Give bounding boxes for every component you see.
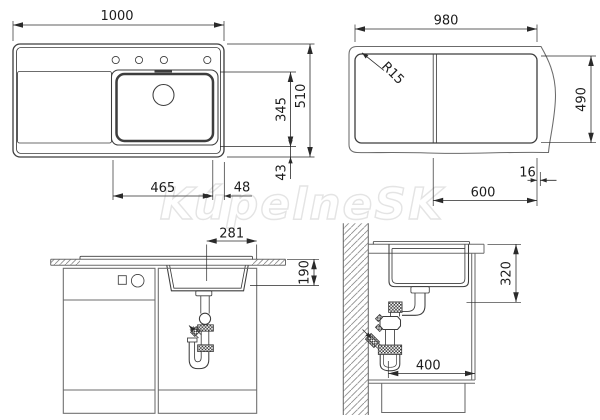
dim-wall-clearance: 400 bbox=[416, 359, 441, 374]
plan-view: 1000 510 345 43 465 48 bbox=[13, 9, 315, 200]
dim-bowl-to-front: 43 bbox=[275, 164, 290, 181]
dim-bowl-length: 345 bbox=[275, 97, 290, 122]
worktop-section bbox=[51, 259, 286, 265]
coupling-nut bbox=[198, 345, 214, 352]
dim-bowl-section-width: 600 bbox=[471, 186, 496, 201]
drainboard bbox=[18, 72, 112, 144]
dim-overall-depth: 510 bbox=[294, 84, 309, 109]
cutout-divider bbox=[433, 54, 436, 143]
cabinets bbox=[63, 268, 256, 413]
sink-cabinet bbox=[158, 268, 256, 413]
cutout-view: 980 R15 490 16 600 bbox=[349, 14, 596, 207]
trap-cup bbox=[380, 355, 400, 371]
dim-mounting-depth: 320 bbox=[500, 261, 515, 286]
sink-technical-drawing-page: KúpelneSK 1000 bbox=[0, 0, 600, 420]
bowl-side-section bbox=[389, 244, 469, 286]
dishwasher-dial bbox=[131, 274, 144, 287]
side-view: 320 400 bbox=[343, 223, 521, 415]
sink-outline bbox=[13, 44, 224, 157]
ball-joint bbox=[199, 313, 210, 324]
cutout-dimensions: 980 R15 490 16 600 bbox=[355, 14, 596, 207]
dim-edge-gap: 16 bbox=[519, 166, 536, 181]
bowl-outer bbox=[112, 70, 219, 145]
drain-hole bbox=[153, 85, 174, 106]
cabinet-side bbox=[368, 253, 475, 412]
trap-nut bbox=[378, 345, 401, 355]
valve-body bbox=[380, 317, 401, 330]
siphon-front bbox=[188, 291, 214, 369]
dim-corner-radius: R15 bbox=[378, 59, 407, 88]
elbow-nut bbox=[389, 302, 403, 313]
technical-drawing: KúpelneSK 1000 bbox=[0, 0, 600, 420]
plan-dimensions: 1000 510 345 43 465 48 bbox=[13, 9, 315, 200]
worktop-outline bbox=[349, 47, 556, 154]
dim-drain-offset: 281 bbox=[219, 227, 244, 242]
watermark: KúpelneSK bbox=[160, 179, 445, 230]
tap-holes bbox=[112, 56, 211, 63]
wall-section bbox=[343, 223, 368, 415]
drain-flange bbox=[196, 291, 212, 296]
front-view: 281 190 bbox=[51, 227, 319, 414]
plinth bbox=[382, 383, 465, 412]
dim-bowl-width: 465 bbox=[150, 181, 175, 196]
bowl-section bbox=[167, 265, 248, 291]
dishwasher-button bbox=[118, 276, 126, 285]
dim-cutout-width: 980 bbox=[434, 14, 459, 29]
dim-bowl-to-edge: 48 bbox=[234, 181, 251, 196]
drain-flange-side bbox=[411, 287, 429, 293]
dim-cutout-depth: 490 bbox=[575, 87, 590, 112]
left-cabinet bbox=[63, 268, 155, 413]
dim-bowl-depth: 190 bbox=[298, 260, 313, 285]
dim-overall-width: 1000 bbox=[100, 9, 133, 24]
